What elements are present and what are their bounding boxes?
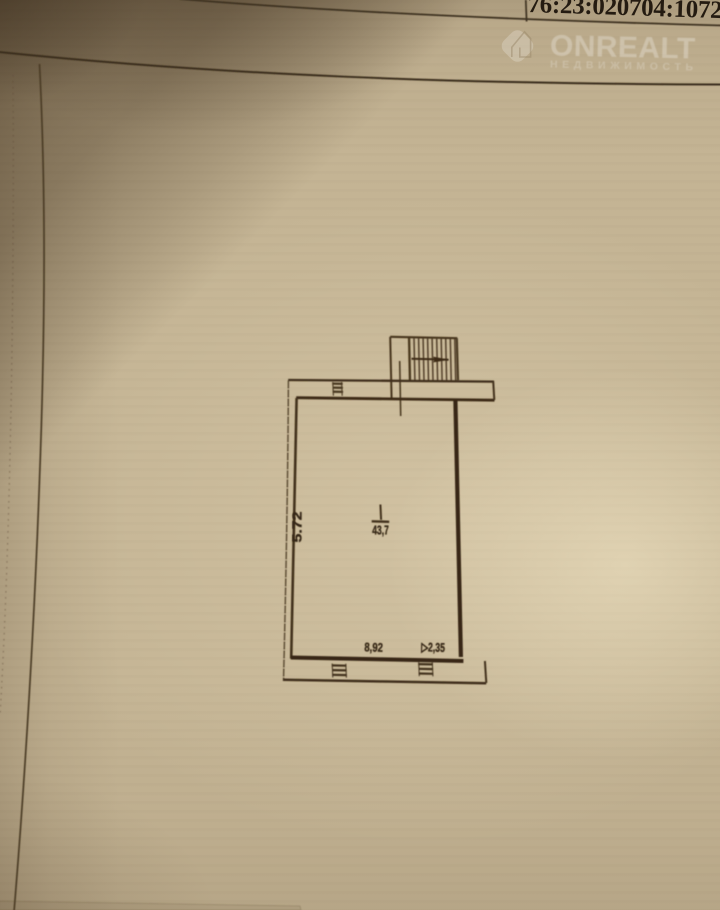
svg-text:▷2,35: ▷2,35 <box>420 640 445 655</box>
svg-text:8,92: 8,92 <box>364 640 383 655</box>
svg-text:43,7: 43,7 <box>372 524 389 538</box>
svg-text:5.72: 5.72 <box>291 511 305 542</box>
